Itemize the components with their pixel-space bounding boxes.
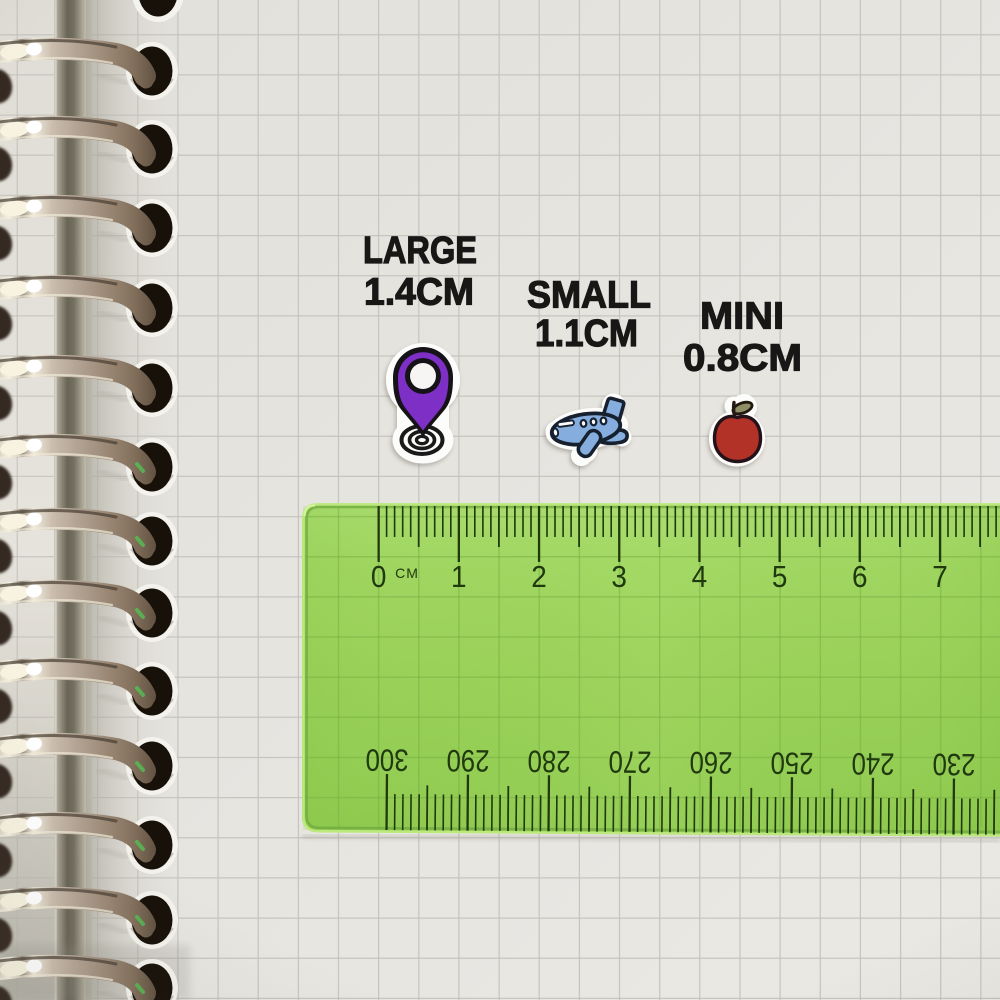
svg-text:290: 290 — [446, 743, 489, 778]
svg-text:280: 280 — [527, 744, 570, 779]
svg-text:5: 5 — [772, 560, 788, 595]
svg-text:1.1CM: 1.1CM — [535, 313, 638, 355]
svg-text:SMALL: SMALL — [527, 275, 651, 317]
svg-text:3: 3 — [611, 560, 627, 595]
svg-text:7: 7 — [932, 560, 948, 595]
svg-text:270: 270 — [608, 744, 651, 779]
svg-text:MINI: MINI — [700, 296, 784, 338]
svg-text:6: 6 — [852, 560, 868, 595]
svg-text:240: 240 — [851, 746, 894, 781]
svg-text:1.4CM: 1.4CM — [364, 272, 474, 314]
svg-text:1: 1 — [451, 560, 467, 595]
svg-text:0.8CM: 0.8CM — [683, 338, 802, 380]
svg-text:CM: CM — [395, 565, 419, 581]
svg-text:LARGE: LARGE — [363, 230, 477, 272]
svg-text:230: 230 — [932, 747, 975, 782]
svg-text:0: 0 — [371, 560, 387, 595]
svg-text:2: 2 — [531, 560, 547, 595]
svg-text:300: 300 — [365, 742, 408, 777]
svg-text:260: 260 — [689, 745, 732, 780]
svg-text:4: 4 — [692, 560, 708, 595]
svg-text:250: 250 — [770, 746, 813, 781]
